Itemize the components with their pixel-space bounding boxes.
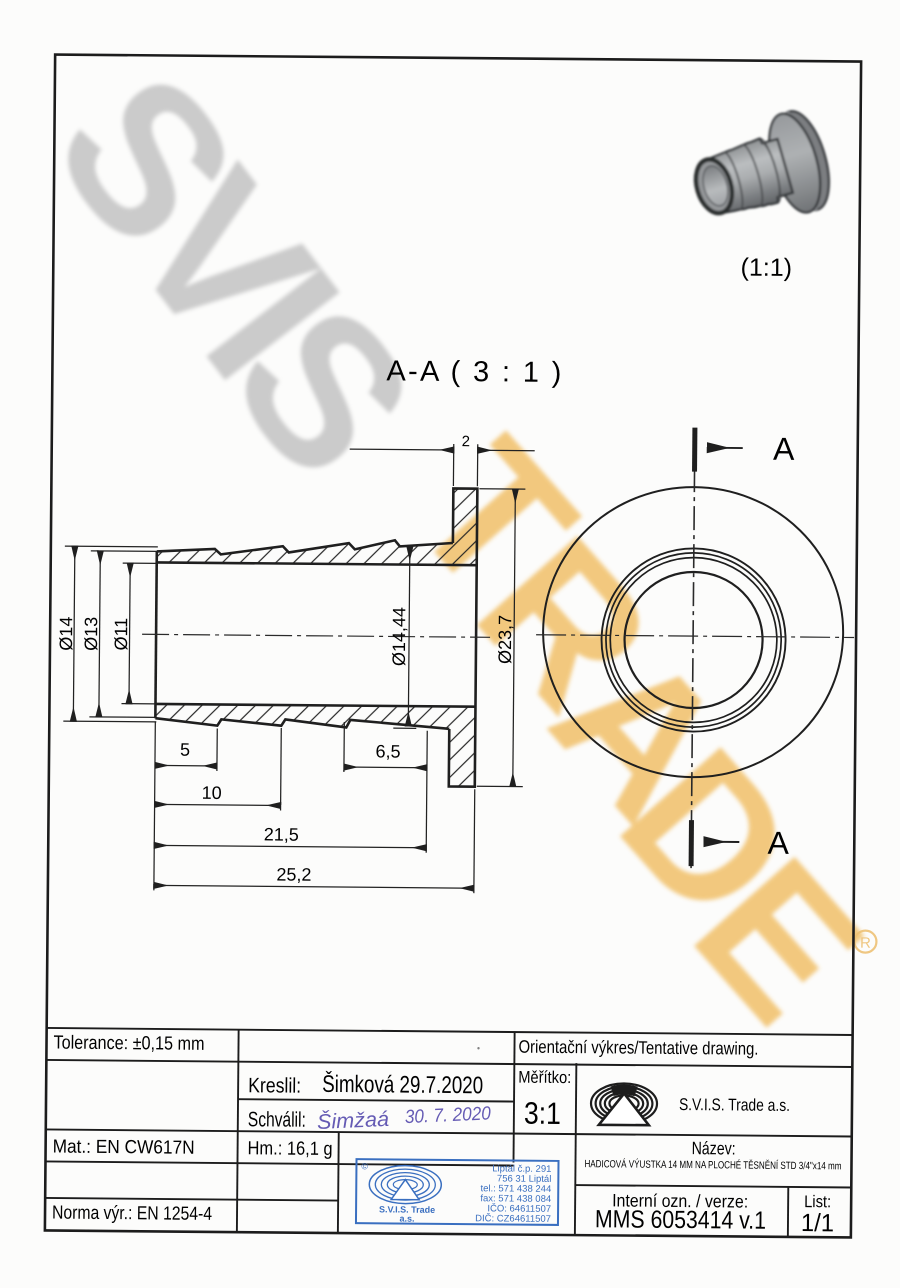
svg-text:30. 7. 2020: 30. 7. 2020 bbox=[404, 1103, 491, 1128]
svg-text:HADICOVÁ VÝUSTKA 14 MM NA PLOC: HADICOVÁ VÝUSTKA 14 MM NA PLOCHÉ TĚSNĚNÍ… bbox=[584, 1157, 841, 1172]
svg-text:©: © bbox=[361, 1161, 368, 1171]
svg-text:A-A ( 3 : 1 ): A-A ( 3 : 1 ) bbox=[386, 355, 561, 389]
svg-text:6,5: 6,5 bbox=[375, 741, 400, 761]
svg-text:MMS 6053414 v.1: MMS 6053414 v.1 bbox=[595, 1205, 766, 1234]
svg-text:1/1: 1/1 bbox=[801, 1209, 834, 1237]
svg-text:2: 2 bbox=[462, 433, 470, 450]
svg-text:10: 10 bbox=[202, 783, 222, 803]
svg-text:Ø13: Ø13 bbox=[81, 617, 101, 651]
svg-text:Název:: Název: bbox=[692, 1138, 736, 1158]
svg-text:Mat.: EN CW617N: Mat.: EN CW617N bbox=[53, 1137, 195, 1159]
svg-text:Ø14: Ø14 bbox=[56, 617, 76, 651]
svg-text:A: A bbox=[767, 825, 789, 861]
svg-text:Orientační výkres/Tentative dr: Orientační výkres/Tentative drawing. bbox=[518, 1037, 758, 1059]
svg-text:Ø14,44: Ø14,44 bbox=[389, 607, 410, 666]
svg-text:Měřítko:: Měřítko: bbox=[518, 1068, 571, 1087]
svg-text:Šimžaá: Šimžaá bbox=[317, 1108, 390, 1134]
svg-text:Hm.: 16,1 g: Hm.: 16,1 g bbox=[248, 1138, 333, 1160]
svg-text:5: 5 bbox=[180, 740, 190, 760]
svg-text:DIČ: CZ64611507: DIČ: CZ64611507 bbox=[475, 1213, 551, 1225]
svg-text:a.s.: a.s. bbox=[399, 1214, 414, 1224]
svg-text:(1:1): (1:1) bbox=[740, 253, 792, 281]
svg-text:Tolerance: ±0,15 mm: Tolerance: ±0,15 mm bbox=[53, 1033, 204, 1055]
svg-text:A: A bbox=[773, 431, 795, 467]
svg-text:3:1: 3:1 bbox=[524, 1096, 561, 1131]
svg-text:25,2: 25,2 bbox=[276, 864, 311, 884]
svg-text:21,5: 21,5 bbox=[264, 824, 299, 844]
svg-text:Ø11: Ø11 bbox=[111, 618, 131, 651]
svg-text:Ø23,7: Ø23,7 bbox=[495, 615, 515, 664]
svg-text:S.V.I.S. Trade a.s.: S.V.I.S. Trade a.s. bbox=[679, 1095, 790, 1115]
svg-text:R: R bbox=[860, 935, 871, 952]
svg-text:Schválil:: Schválil: bbox=[248, 1108, 306, 1132]
svg-text:Norma výr.: EN 1254-4: Norma výr.: EN 1254-4 bbox=[52, 1203, 213, 1225]
svg-text:Kreslil:: Kreslil: bbox=[248, 1074, 301, 1097]
svg-text:Šimková 29.7.2020: Šimková 29.7.2020 bbox=[322, 1070, 483, 1099]
